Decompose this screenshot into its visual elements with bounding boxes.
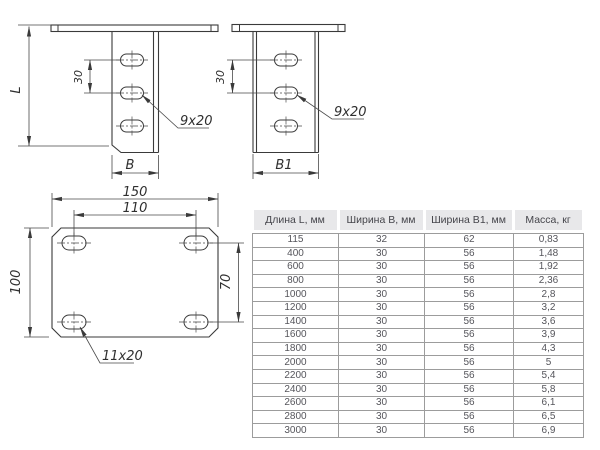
- side-view-b1-drawing: 30 9x20 B1: [214, 25, 367, 180]
- table-cell: 30: [339, 274, 425, 288]
- table-row: 180030564,3: [253, 342, 584, 356]
- table-cell: 1200: [253, 301, 339, 315]
- table-row: 120030563,2: [253, 301, 584, 315]
- table-cell: 56: [425, 315, 514, 329]
- plan-view-drawing: 150 110 100 70 11x20: [9, 185, 244, 364]
- table-cell: 4,3: [514, 342, 584, 356]
- side-view-b-drawing: L 30 9x20 B: [9, 25, 218, 179]
- table-row: 80030562,36: [253, 274, 584, 288]
- dim-label-overall-width: 150: [123, 185, 148, 200]
- slot-size-label: 11x20: [102, 349, 143, 364]
- table-cell: 3000: [253, 424, 339, 438]
- dim-label-slot-spacing: 30: [214, 70, 227, 84]
- dim-label-hole-spacing-x: 110: [123, 201, 148, 216]
- table-cell: 56: [425, 301, 514, 315]
- column-header-width-b1: Ширина B1, мм: [426, 210, 512, 230]
- table-cell: 1800: [253, 342, 339, 356]
- table-row: 11532620,83: [253, 234, 584, 248]
- table-row: 300030566,9: [253, 424, 584, 438]
- table-cell: 5,4: [514, 369, 584, 383]
- table-cell: 30: [339, 342, 425, 356]
- table-cell: 2600: [253, 397, 339, 411]
- table-cell: 5: [514, 356, 584, 370]
- slot-size-label: 9x20: [180, 114, 213, 129]
- table-row: 260030566,1: [253, 397, 584, 411]
- table-cell: 56: [425, 424, 514, 438]
- table-cell: 30: [339, 397, 425, 411]
- table-cell: 1,92: [514, 261, 584, 275]
- table-cell: 56: [425, 383, 514, 397]
- table-cell: 56: [425, 410, 514, 424]
- table-cell: 2,8: [514, 288, 584, 302]
- table-cell: 56: [425, 342, 514, 356]
- table-row: 140030563,6: [253, 315, 584, 329]
- table-cell: 1600: [253, 329, 339, 343]
- table-cell: 1,48: [514, 247, 584, 261]
- table-cell: 30: [339, 329, 425, 343]
- table-cell: 600: [253, 261, 339, 275]
- table-row: 40030561,48: [253, 247, 584, 261]
- table-cell: 30: [339, 301, 425, 315]
- table-cell: 2800: [253, 410, 339, 424]
- table-cell: 32: [339, 234, 425, 248]
- table-cell: 56: [425, 261, 514, 275]
- table-body: 11532620,8340030561,4860030561,928003056…: [252, 233, 584, 438]
- table-cell: 30: [339, 410, 425, 424]
- table-cell: 6,1: [514, 397, 584, 411]
- top-flange-outline: [232, 25, 345, 32]
- dim-label-width-B1: B1: [275, 158, 292, 173]
- table-cell: 2000: [253, 356, 339, 370]
- table-cell: 56: [425, 247, 514, 261]
- table-cell: 3,2: [514, 301, 584, 315]
- table-cell: 30: [339, 247, 425, 261]
- slot-holes-11x20: [57, 233, 213, 333]
- table-cell: 3,9: [514, 329, 584, 343]
- table-cell: 30: [339, 369, 425, 383]
- table-cell: 30: [339, 315, 425, 329]
- table-row: 280030566,5: [253, 410, 584, 424]
- table-cell: 62: [425, 234, 514, 248]
- dimensions-table: Длина L, мм Ширина B, мм Ширина B1, мм М…: [252, 210, 583, 438]
- table-cell: 5,8: [514, 383, 584, 397]
- table-cell: 6,9: [514, 424, 584, 438]
- table-row: 200030565: [253, 356, 584, 370]
- column-header-mass: Масса, кг: [515, 210, 582, 230]
- table-cell: 56: [425, 288, 514, 302]
- table-cell: 56: [425, 369, 514, 383]
- dim-label-length-L: L: [9, 86, 24, 93]
- table-cell: 3,6: [514, 315, 584, 329]
- table-cell: 1000: [253, 288, 339, 302]
- table-cell: 30: [339, 424, 425, 438]
- column-header-length: Длина L, мм: [254, 210, 337, 230]
- dim-label-overall-height: 100: [9, 270, 24, 295]
- table-cell: 1400: [253, 315, 339, 329]
- table-cell: 400: [253, 247, 339, 261]
- top-flange-outline: [51, 25, 218, 32]
- table-cell: 30: [339, 288, 425, 302]
- table-row: 100030562,8: [253, 288, 584, 302]
- table-cell: 2,36: [514, 274, 584, 288]
- table-cell: 56: [425, 329, 514, 343]
- table-cell: 2200: [253, 369, 339, 383]
- table-row: 220030565,4: [253, 369, 584, 383]
- table-header-row: Длина L, мм Ширина B, мм Ширина B1, мм М…: [252, 210, 583, 230]
- table-row: 160030563,9: [253, 329, 584, 343]
- slot-size-label: 9x20: [334, 105, 367, 120]
- table-cell: 800: [253, 274, 339, 288]
- table-row: 240030565,8: [253, 383, 584, 397]
- spec-sheet: L 30 9x20 B: [0, 0, 600, 450]
- table-cell: 56: [425, 356, 514, 370]
- table-cell: 30: [339, 383, 425, 397]
- table-cell: 56: [425, 274, 514, 288]
- table-row: 60030561,92: [253, 261, 584, 275]
- table-cell: 30: [339, 261, 425, 275]
- table-cell: 30: [339, 356, 425, 370]
- dim-label-width-B: B: [126, 158, 135, 173]
- dim-label-hole-spacing-y: 70: [219, 274, 234, 291]
- table-cell: 115: [253, 234, 339, 248]
- table-cell: 0,83: [514, 234, 584, 248]
- column-header-width-b: Ширина B, мм: [340, 210, 423, 230]
- dim-label-slot-spacing: 30: [72, 70, 85, 84]
- table-cell: 2400: [253, 383, 339, 397]
- table-cell: 56: [425, 397, 514, 411]
- table-cell: 6,5: [514, 410, 584, 424]
